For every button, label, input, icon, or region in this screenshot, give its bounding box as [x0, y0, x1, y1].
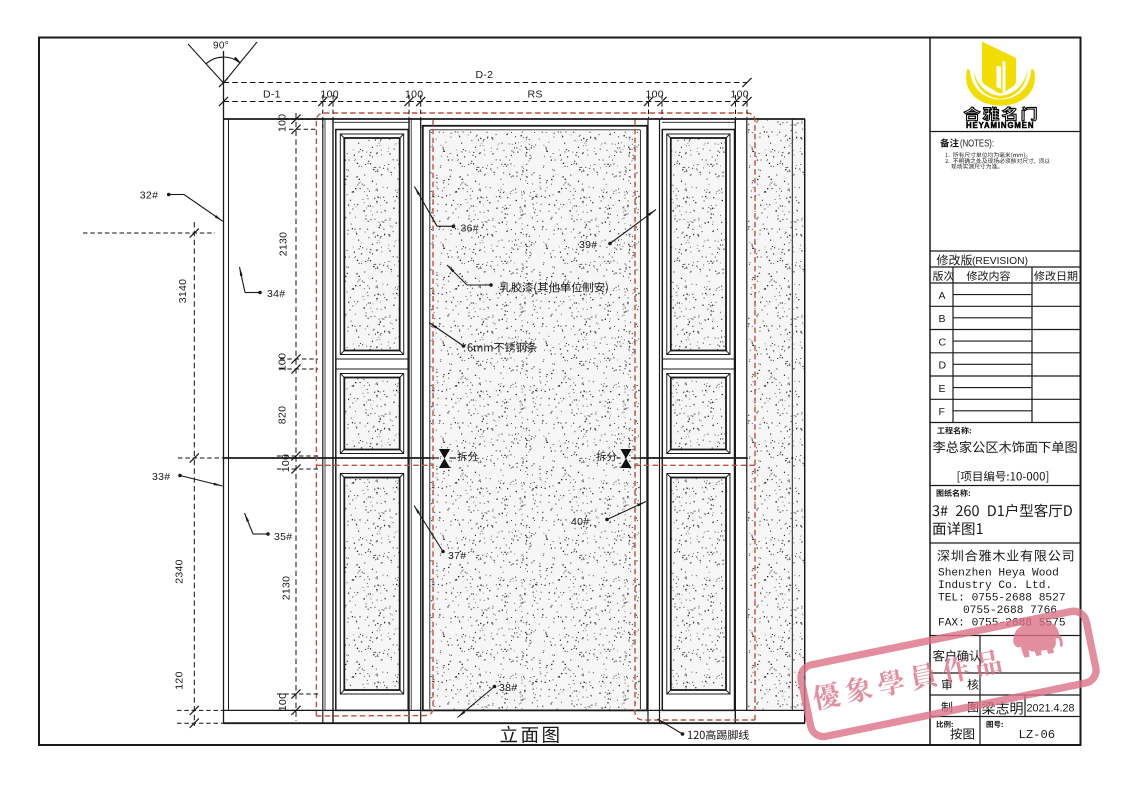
svg-text:33#: 33#: [152, 471, 170, 483]
svg-text:D: D: [939, 360, 947, 372]
svg-text:B: B: [939, 313, 946, 325]
svg-text:(NOTES):: (NOTES):: [960, 138, 994, 150]
svg-text:(REVISION): (REVISION): [972, 255, 1028, 267]
svg-text:100: 100: [405, 89, 423, 101]
svg-text:E: E: [939, 383, 946, 395]
svg-text:RS: RS: [528, 89, 543, 101]
svg-text:35#: 35#: [274, 531, 292, 543]
svg-text:D-1: D-1: [263, 89, 281, 101]
svg-text:TEL: 0755-2688 8527: TEL: 0755-2688 8527: [938, 593, 1066, 605]
svg-text:40#: 40#: [571, 516, 589, 528]
svg-text:HEYAMINGMEN: HEYAMINGMEN: [966, 121, 1034, 130]
svg-text:LZ-06: LZ-06: [1019, 728, 1056, 742]
svg-text:100: 100: [321, 89, 339, 101]
svg-text:100: 100: [277, 353, 289, 371]
svg-text:38#: 38#: [499, 682, 517, 694]
svg-text:2130: 2130: [277, 232, 289, 257]
svg-text:32#: 32#: [140, 190, 158, 202]
svg-text:Shenzhen Heya Wood: Shenzhen Heya Wood: [938, 568, 1059, 580]
svg-text:2340: 2340: [174, 559, 186, 584]
svg-text:2130: 2130: [281, 576, 293, 601]
svg-text:100: 100: [280, 454, 292, 472]
svg-text:36#: 36#: [461, 223, 479, 235]
svg-text:D-2: D-2: [476, 69, 494, 81]
svg-text:C: C: [939, 336, 947, 348]
svg-text:100: 100: [646, 89, 664, 101]
svg-text:90°: 90°: [213, 41, 229, 52]
svg-text:120: 120: [174, 671, 186, 689]
svg-text:100: 100: [277, 693, 289, 711]
svg-text:Industry Co. Ltd.: Industry Co. Ltd.: [938, 580, 1052, 592]
svg-text:2021.4.28: 2021.4.28: [1027, 703, 1075, 715]
svg-text:39#: 39#: [579, 239, 597, 251]
svg-text:100: 100: [277, 114, 289, 132]
svg-text:100: 100: [731, 89, 749, 101]
svg-text:3140: 3140: [177, 279, 189, 304]
svg-text:820: 820: [277, 406, 289, 424]
svg-text:F: F: [939, 406, 946, 418]
svg-text:34#: 34#: [267, 288, 285, 300]
svg-text:37#: 37#: [448, 550, 466, 562]
svg-text:A: A: [939, 290, 946, 302]
